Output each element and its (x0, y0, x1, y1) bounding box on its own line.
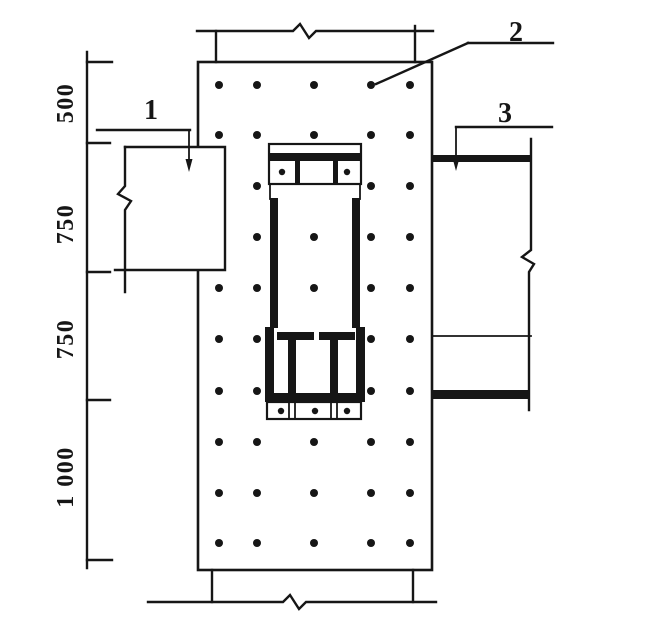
callout-3-label: 3 (498, 98, 512, 129)
anchor-dot (367, 539, 375, 547)
anchor-dot (406, 131, 414, 139)
anchor-dot (253, 387, 261, 395)
top-bracket-band (269, 153, 361, 161)
anchor-dot (215, 387, 223, 395)
element-3-top-flange (432, 155, 532, 162)
anchor-dot (253, 81, 261, 89)
t-section-2-flange (319, 332, 355, 340)
anchor-dot (215, 489, 223, 497)
top-bracket-outline (269, 144, 361, 184)
anchor-dot (215, 335, 223, 343)
anchor-dot (367, 438, 375, 446)
anchor-dot (406, 438, 414, 446)
anchor-dot (406, 284, 414, 292)
anchor-dot (406, 182, 414, 190)
anchor-dot (215, 131, 223, 139)
anchor-dot (367, 233, 375, 241)
anchor-dot (215, 438, 223, 446)
anchor-dot (406, 489, 414, 497)
anchor-dot (406, 539, 414, 547)
bottom-bar (265, 393, 365, 402)
anchor-dot (406, 81, 414, 89)
dim-label-1000: 1 000 (53, 446, 79, 508)
anchor-dot (310, 131, 318, 139)
left-flange-lower (265, 327, 274, 402)
anchor-dot (406, 387, 414, 395)
element-3-beam (432, 139, 534, 410)
anchor-dot (310, 438, 318, 446)
anchor-dot (310, 539, 318, 547)
top-break-line (197, 24, 433, 38)
anchor-dot (367, 335, 375, 343)
t-section-2-web (330, 340, 338, 394)
anchor-dot (253, 284, 261, 292)
right-flange-upper (352, 198, 360, 328)
dim-label-750-lower: 750 (53, 319, 79, 360)
anchor-dot (310, 284, 318, 292)
anchor-dot (215, 284, 223, 292)
left-flange-upper (270, 198, 278, 328)
element-3-break-edge (522, 139, 534, 410)
right-flange-lower (356, 327, 365, 402)
anchor-dot (310, 489, 318, 497)
dim-label-750-upper: 750 (53, 204, 79, 245)
anchor-dot (310, 81, 318, 89)
anchor-dot (367, 387, 375, 395)
anchor-dot (406, 335, 414, 343)
callout-1-label: 1 (144, 95, 158, 126)
anchor-dot (310, 233, 318, 241)
drawing-canvas: 500 750 750 1 000 1 2 3 (0, 0, 654, 626)
bolt-dot (344, 408, 350, 414)
anchor-dot (367, 182, 375, 190)
bolt-dot (312, 408, 318, 414)
top-bracket-divider-right (333, 160, 338, 184)
bottom-break-line (148, 595, 436, 609)
anchor-dot (406, 233, 414, 241)
anchor-dot (253, 233, 261, 241)
element-1-plate (115, 147, 225, 292)
anchor-dot (253, 335, 261, 343)
anchor-dot (367, 284, 375, 292)
top-bracket-divider-left (295, 160, 300, 184)
t-section-1-web (288, 340, 296, 394)
element-3-bottom-flange (432, 390, 530, 399)
anchor-dot (367, 81, 375, 89)
anchor-dot (215, 81, 223, 89)
t-section-1-flange (277, 332, 314, 340)
anchor-dot (253, 489, 261, 497)
technical-drawing: 500 750 750 1 000 1 2 3 (0, 0, 654, 626)
anchor-dot (367, 131, 375, 139)
anchor-dot (253, 131, 261, 139)
anchor-dot (215, 539, 223, 547)
element-1-fill (125, 147, 225, 270)
anchor-dot (253, 182, 261, 190)
bolt-dot (344, 169, 350, 175)
callout-3-arrowhead (453, 158, 460, 171)
anchor-dot (253, 438, 261, 446)
bolt-dot (279, 169, 285, 175)
anchor-dot (253, 539, 261, 547)
dim-label-500: 500 (53, 83, 79, 124)
bolt-dot (278, 408, 284, 414)
anchor-dot (367, 489, 375, 497)
